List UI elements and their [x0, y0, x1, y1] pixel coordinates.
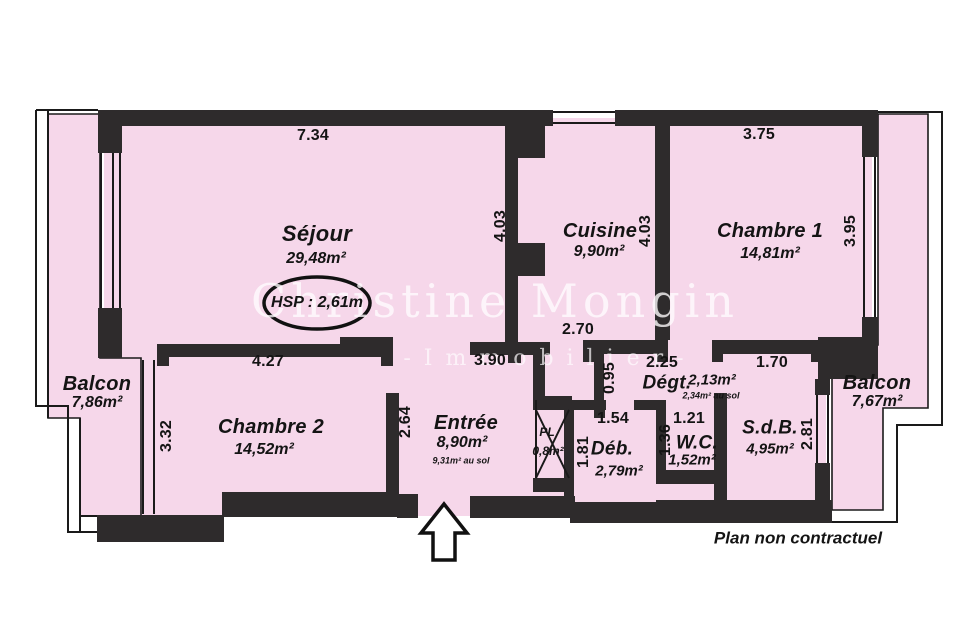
room-label-cuisine: Cuisine — [563, 221, 637, 241]
room-area-cuisine: 9,90m² — [574, 244, 625, 260]
dim-cuisine-height: 4.03 — [638, 215, 654, 247]
dim-deb-width: 1.54 — [597, 411, 629, 427]
room-label-chambre1: Chambre 1 — [717, 221, 823, 241]
room-label-placard: PL — [539, 426, 554, 438]
dim-entree-width: 3.90 — [474, 353, 506, 369]
dim-sdb-height: 2.81 — [800, 418, 816, 450]
room-floor-area-entree: 9,31m² au sol — [432, 457, 489, 466]
room-label-sejour: Séjour — [282, 223, 352, 245]
room-area-chambre1: 14,81m² — [740, 246, 800, 262]
dim-sejour-height: 4.03 — [493, 210, 509, 242]
room-label-balcon-droit: Balcon — [843, 373, 911, 393]
room-area-sdb: 4,95m² — [746, 442, 794, 457]
dim-degt-height: 0.95 — [602, 362, 618, 394]
room-area-placard: 0,8m² — [532, 445, 563, 457]
room-area-entree: 8,90m² — [437, 435, 488, 451]
dim-chambre1-height: 3.95 — [843, 215, 859, 247]
footer-note: Plan non contractuel — [714, 530, 882, 547]
dim-chambre2-height: 3.32 — [159, 420, 175, 452]
dim-cuisine-bottom: 2.70 — [562, 322, 594, 338]
room-label-sdb: S.d.B. — [742, 419, 798, 438]
room-area-sejour: 29,48m² — [286, 251, 346, 267]
room-label-deb: Déb. — [591, 440, 633, 459]
dim-sejour-bottom: 4.27 — [252, 354, 284, 370]
dim-chambre1-width: 3.75 — [743, 127, 775, 143]
room-label-chambre2: Chambre 2 — [218, 417, 324, 437]
room-area-deb: 2,79m² — [595, 464, 643, 479]
dim-degt-width: 2.25 — [646, 355, 678, 371]
dim-deb-height: 1.81 — [576, 436, 592, 468]
room-floor-area-degt: 2,34m² au sol — [682, 392, 739, 401]
room-area-balcon-droit: 7,67m² — [852, 394, 903, 410]
dim-entree-height: 2.64 — [398, 406, 414, 438]
floorplan-page: Christine Mongin -Immobilier- Séjour 29,… — [0, 0, 980, 630]
dim-wc-height: 1.36 — [658, 424, 674, 456]
room-label-balcon-gauche: Balcon — [63, 374, 131, 394]
ceiling-height-label: HSP : 2,61m — [271, 295, 363, 311]
dim-chambre1-bottom: 1.70 — [756, 355, 788, 371]
room-area-wc: 1,52m² — [668, 453, 716, 468]
room-label-wc: W.C. — [676, 434, 718, 453]
dim-wc-width: 1.21 — [673, 411, 705, 427]
room-area-chambre2: 14,52m² — [234, 442, 294, 458]
room-area-balcon-gauche: 7,86m² — [72, 395, 123, 411]
dim-sejour-width: 7.34 — [297, 128, 329, 144]
room-label-entree: Entrée — [434, 413, 498, 433]
room-area-degt: 2,13m² — [688, 373, 736, 388]
